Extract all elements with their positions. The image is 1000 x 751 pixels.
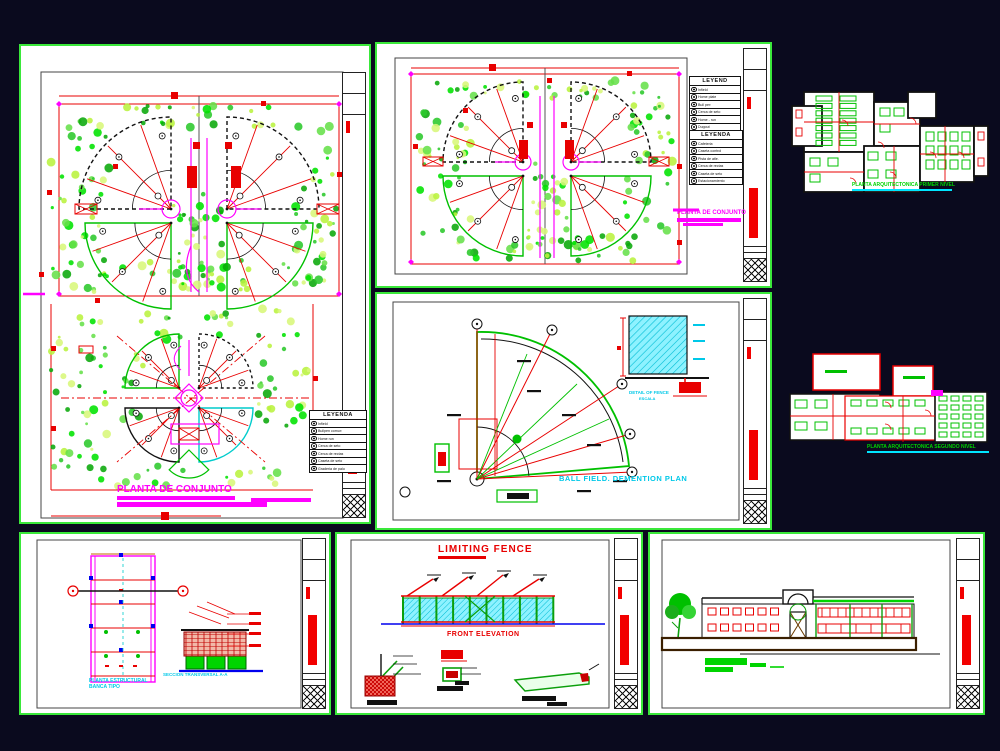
sheet-site-plan-2: LEYEND InfieldHome plateBull penCerca de… [375, 42, 772, 288]
floor-plan-1: PLANTA ARQUITECTONICA PRIMER NIVEL [790, 88, 990, 200]
floor-plan-1-label: PLANTA ARQUITECTONICA PRIMER NIVEL [852, 182, 955, 188]
legend-row: Infield [310, 420, 366, 428]
plan-note: PLANTA DE CONJUNTO [677, 210, 746, 216]
titleblock-strip [743, 298, 767, 524]
detail-label: DETAIL OF FENCE [629, 390, 669, 395]
legend-row: Caseta de seto [690, 170, 742, 178]
section-label: SECCION TRANSVERSAL A-A [163, 672, 228, 677]
titleblock-hatch-icon [343, 494, 365, 517]
legend-row: Pista de atle. [690, 155, 742, 163]
titleblock-strip [743, 48, 767, 282]
legend-box-a: LEYEND InfieldHome plateBull penCerca de… [689, 76, 741, 131]
plan-label-2: BANCA TIPO [89, 684, 120, 690]
sheet-structural: PLANTA ESTRUCTURAL BANCA TIPO SECCION TR… [19, 532, 331, 715]
floor-plan-2: PLANTA ARQUITECTONICA SEGUNDO NIVEL [785, 352, 990, 462]
building-elevation-drawing [650, 534, 983, 713]
structural-drawing [21, 534, 329, 713]
legend-row: Cerca de seto [690, 109, 740, 117]
titleblock-strip [302, 538, 326, 709]
titleblock-strip [956, 538, 980, 709]
legend-row: Home run [310, 435, 366, 443]
detail-scale-label: ESCALA [639, 396, 655, 401]
sheet-title: PLANTA DE CONJUNTO [117, 484, 232, 495]
legend-row: Infield [690, 86, 740, 94]
cad-workspace: LEYENDA InfieldBullpen comunHome runCerc… [0, 0, 1000, 751]
titleblock-strip [614, 538, 638, 709]
front-elevation-label: FRONT ELEVATION [447, 631, 520, 638]
legend-row: Estacionamiento [690, 178, 742, 185]
fence-drawing [337, 534, 641, 713]
ball-field-drawing [377, 294, 770, 528]
sheet-fence: LIMITING FENCE FRONT ELEVATION [335, 532, 643, 715]
legend-row: Bullpen comun [310, 428, 366, 436]
ball-field-title: BALL FIELD. DEMENTION PLAN [559, 474, 687, 483]
titleblock-hatch-icon [615, 685, 637, 708]
legend-row: Cerca de seto [310, 443, 366, 451]
legend-box: LEYENDA InfieldBullpen comunHome runCerc… [309, 410, 367, 473]
legend-box-b: LEYENDA CafeteriaCaseta controlPista de … [689, 130, 743, 185]
legend-row: Cerca de rectas [690, 163, 742, 171]
titleblock-hatch-icon [957, 685, 979, 708]
titleblock-hatch-icon [303, 685, 325, 708]
legend-row: Caseta de seto [310, 458, 366, 466]
floor-plan-2-label: PLANTA ARQUITECTONICA SEGUNDO NIVEL [867, 444, 976, 450]
fence-title: LIMITING FENCE [438, 544, 533, 555]
legend-row: Bull pen [690, 101, 740, 109]
sheet-site-plan: LEYENDA InfieldBullpen comunHome runCerc… [19, 44, 371, 524]
sheet-building-elevation [648, 532, 985, 715]
legend-row: Home plate [690, 94, 740, 102]
sheet-ball-field: BALL FIELD. DEMENTION PLAN DETAIL OF FEN… [375, 292, 772, 530]
legend-title: LEYENDA [310, 411, 366, 420]
legend-row: Graderia de palo [310, 465, 366, 472]
titleblock-hatch-icon [744, 500, 766, 523]
legend-row: Cafeteria [690, 140, 742, 148]
legend-row: Caseta control [690, 148, 742, 156]
legend-row: Home - run [690, 116, 740, 124]
legend-row: Cerca de rectas [310, 450, 366, 458]
titleblock-hatch-icon [744, 258, 766, 281]
